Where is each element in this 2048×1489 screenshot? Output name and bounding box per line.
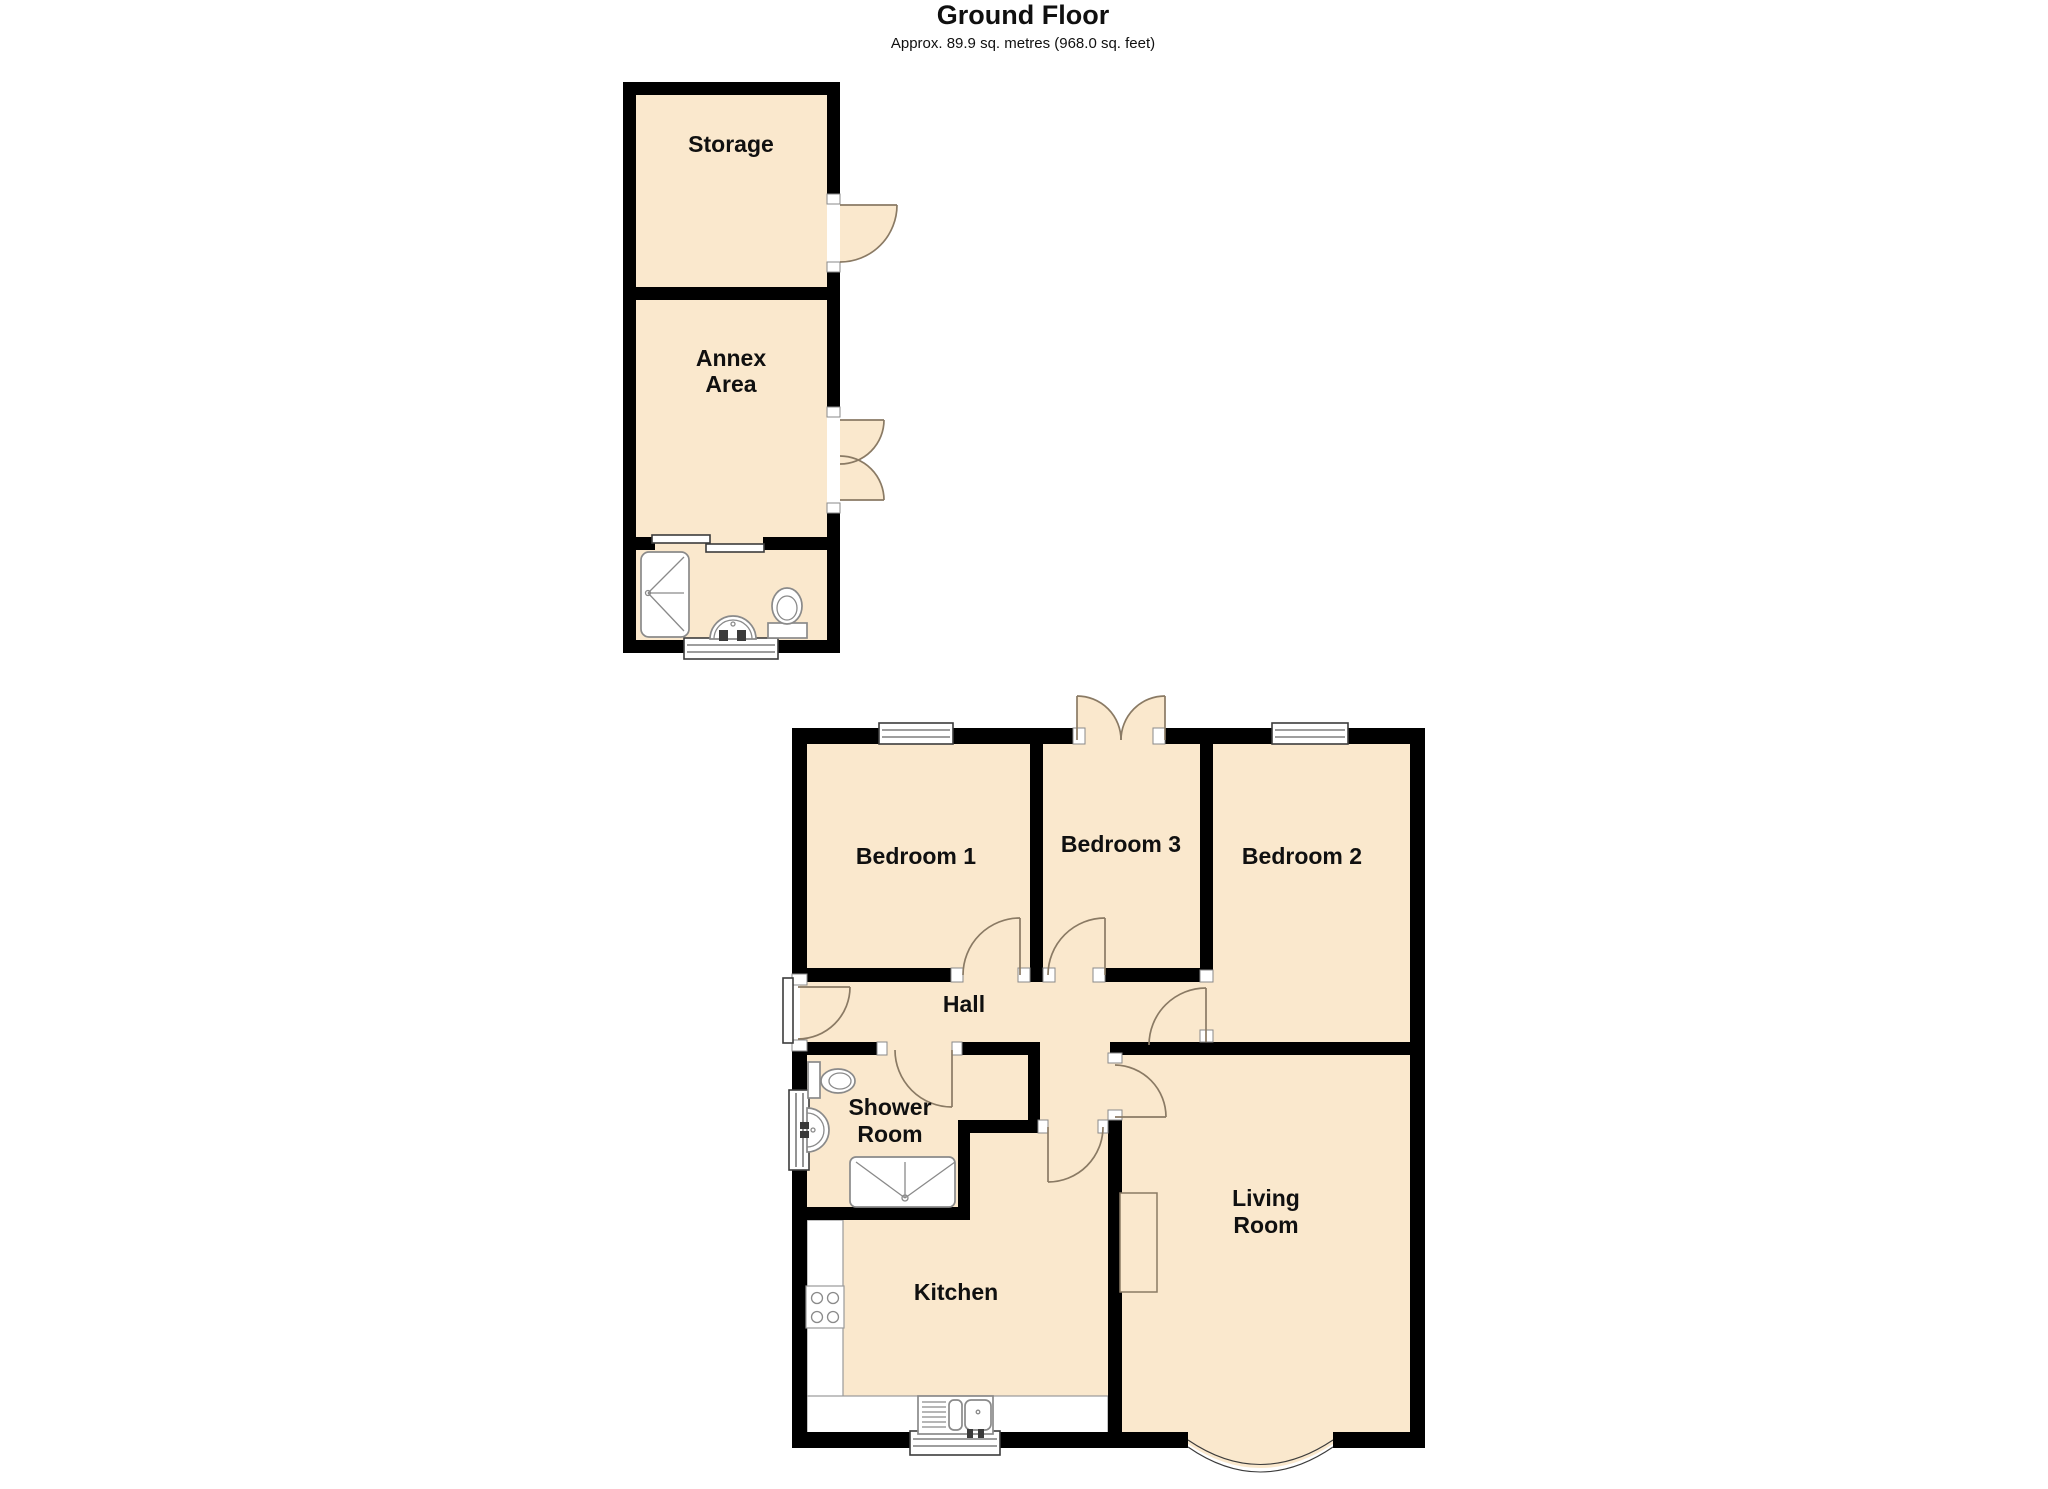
living-room-label-line2: Room	[1233, 1212, 1298, 1238]
front-door-threshold	[783, 978, 793, 1043]
shower-room-right-wall-upper	[1028, 1042, 1040, 1125]
annex-wall-right-3	[827, 503, 840, 653]
jamb	[792, 1040, 807, 1051]
jamb	[1093, 968, 1105, 982]
annex-bath-divider-right	[763, 537, 827, 550]
kitchen-top-wall	[970, 1120, 1048, 1133]
shower-room-label-line1: Shower	[848, 1094, 931, 1120]
annex-shower-enclosure	[641, 552, 689, 637]
kitchen-label: Kitchen	[914, 1279, 998, 1305]
kitchen-sink-unit	[918, 1396, 993, 1438]
annex-wall-right-1	[827, 82, 840, 203]
annex-wall-left	[623, 82, 636, 653]
page-title: Ground Floor	[937, 0, 1110, 30]
jamb	[1038, 1120, 1048, 1133]
jamb	[792, 974, 807, 985]
jamb	[1200, 970, 1213, 982]
annex-area-label-line2: Area	[705, 371, 756, 397]
living-room-label-line1: Living	[1232, 1185, 1300, 1211]
jamb	[1108, 1053, 1122, 1063]
shower-room-right-wall-lower	[958, 1120, 970, 1220]
bedroom3-label: Bedroom 3	[1061, 831, 1181, 857]
floorplan-page: Ground Floor Approx. 89.9 sq. metres (96…	[0, 0, 2048, 1489]
annex-bathroom-window	[684, 638, 778, 659]
annex-wall-top	[623, 82, 840, 95]
bedroom2-window	[1272, 723, 1348, 744]
bedroom1-bottom-wall	[807, 968, 953, 982]
main-wall-right	[1410, 728, 1425, 1448]
jamb	[1108, 1110, 1122, 1120]
jamb	[827, 407, 840, 417]
shower-tray	[850, 1157, 955, 1207]
jamb	[1153, 728, 1165, 744]
shower-room-label-line2: Room	[857, 1121, 922, 1147]
bedroom1-window	[879, 723, 953, 744]
jamb	[827, 262, 840, 272]
floorplan-canvas: Ground Floor Approx. 89.9 sq. metres (96…	[0, 0, 2048, 1489]
jamb	[827, 503, 840, 513]
bedroom3-bedroom2-divider	[1200, 743, 1213, 982]
storage-annex-divider	[636, 287, 827, 300]
living-room-top-wall	[1110, 1042, 1425, 1055]
bedroom1-label: Bedroom 1	[856, 843, 976, 869]
page-subtitle: Approx. 89.9 sq. metres (968.0 sq. feet)	[891, 35, 1155, 52]
main-wall-left-upper	[792, 728, 807, 982]
shower-room-top-wall-right	[952, 1042, 1040, 1055]
jamb	[1073, 728, 1085, 744]
jamb	[877, 1042, 887, 1055]
jamb	[952, 1042, 962, 1055]
annex-area-label-line1: Annex	[696, 345, 767, 371]
bedroom1-bedroom3-divider	[1030, 743, 1043, 982]
storage-door-apron	[840, 205, 897, 262]
bedroom2-label: Bedroom 2	[1242, 843, 1362, 869]
fireplace	[1120, 1193, 1157, 1292]
shower-room-window	[789, 1090, 809, 1170]
bay-window-apron	[1188, 1432, 1333, 1468]
storage-label: Storage	[688, 131, 774, 157]
shower-room-top-wall-left	[807, 1042, 887, 1055]
kitchen-hob	[806, 1286, 844, 1328]
jamb	[951, 968, 963, 982]
hall-label: Hall	[943, 991, 985, 1017]
jamb	[827, 194, 840, 204]
bedroom3-bottom-wall	[1105, 968, 1200, 982]
shower-room-bottom-wall	[807, 1207, 970, 1220]
annex-wall-right-2	[827, 267, 840, 417]
